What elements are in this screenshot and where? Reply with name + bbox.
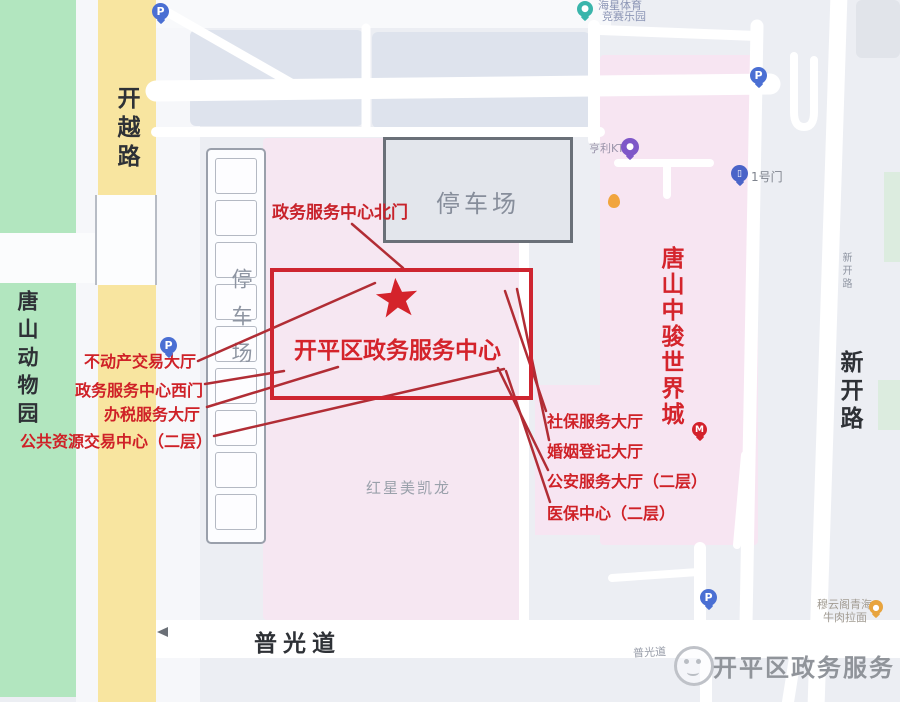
east-green-patch-2 [878,380,900,430]
sports-park-pin-icon: ● [577,1,593,17]
hall-label-medical-insurance: 医保中心（二层） [547,500,675,524]
parking-pin-icon: P [152,3,169,20]
east-green-patch-1 [884,172,900,262]
zhongjun-building-label: 唐山中骏世界城 [653,246,687,428]
star-icon [373,274,421,322]
north-block-east [372,32,590,128]
watermark-logo-icon [674,646,714,686]
puguang-road-label: 普光道 [254,624,341,658]
service-center-title: 开平区政务服务中心 [270,331,525,365]
sports-park-label: 海星体育 竞赛乐园 [598,0,646,22]
map-canvas[interactable]: 停车场 停车场 开平区政务服务中心 政务服务中心北门 不动产交易大厅 政务服务中… [0,0,900,702]
zoo-label: 唐山动物园 [12,290,42,430]
noodle-restaurant-label: 穆云阁青海 牛肉拉面 [817,598,872,624]
parking-slot [215,452,257,488]
road-crossing [95,195,157,285]
flame-icon [608,194,620,208]
watermark-text: 开平区政务服务 [713,648,895,683]
parking-slot [215,494,257,530]
hall-label-real-estate: 不动产交易大厅 [84,348,196,372]
hall-label-police: 公安服务大厅（二层） [547,468,707,492]
gate1-label: 1号门 [751,168,783,185]
parking-slot [215,158,257,194]
noodle-pin-icon: ● [869,600,883,614]
hall-label-marriage: 婚姻登记大厅 [547,438,643,462]
kaiyue-road-label: 开越路 [109,86,143,173]
top-road-area [156,0,611,28]
parking-lot-label: 停车场 [436,184,520,219]
parking-strip-label: 停车场 [226,268,256,379]
parking-slot [215,410,257,446]
hall-label-social-security: 社保服务大厅 [547,408,643,432]
parking-slot [215,200,257,236]
mcdonalds-pin-icon: M [692,422,707,437]
hall-label-tax: 办税服务大厅 [104,401,200,425]
gate1-pin-icon: ▯ [731,165,748,182]
xinkai-road-label-small: 新开路 [838,252,853,291]
northeast-corner-block [856,0,900,58]
parking-lot-box: 停车场 [383,137,573,243]
north-gate-label: 政务服务中心北门 [272,198,408,223]
hall-label-west-gate: 政务服务中心西门 [75,377,203,401]
north-block-west [190,30,363,126]
hongxing-building-label: 红星美凯龙 [366,477,451,498]
parking-pin-icon: P [160,337,177,354]
parking-pin-icon: P [700,589,717,606]
puguang-road-label-small: 普光道 [633,643,667,661]
xinkai-road-label: 新开路 [832,350,866,434]
road-arrow-icon [157,627,168,637]
parking-pin-icon: P [750,67,767,84]
hall-label-public-resources: 公共资源交易中心（二层） [20,428,212,452]
ktv-pin-icon: ● [621,138,639,156]
